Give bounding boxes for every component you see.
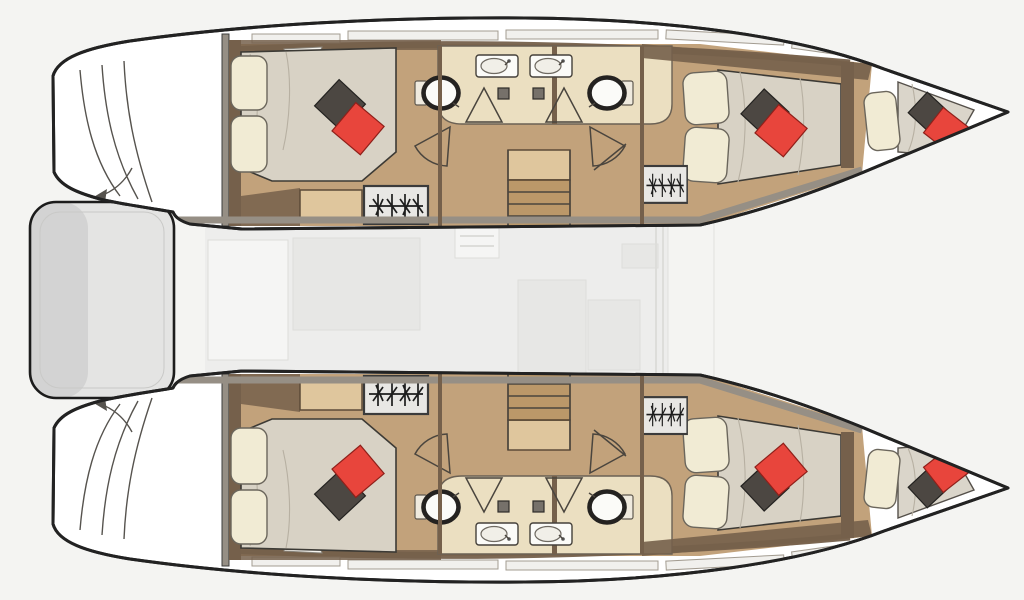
salon-ghost [205,212,714,388]
floor-plan [0,0,1024,600]
aft-platform [30,202,174,398]
catamaran-plan-canvas [0,0,1024,600]
ghost-galley [455,228,499,258]
ghost-table [518,280,586,380]
